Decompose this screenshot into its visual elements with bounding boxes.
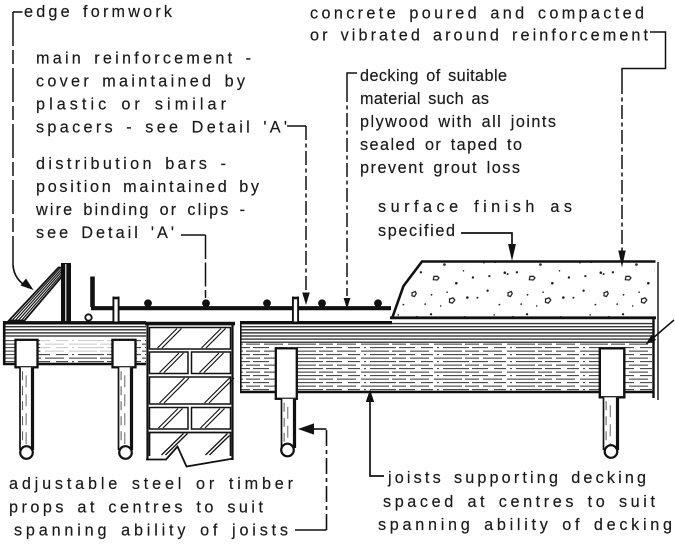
svg-text:material such as: material such as: [360, 90, 489, 108]
svg-text:cover maintained by: cover maintained by: [36, 73, 246, 91]
svg-text:plywood with all joints: plywood with all joints: [360, 113, 556, 131]
svg-text:or vibrated around reinforceme: or vibrated around reinforcement: [310, 27, 649, 45]
svg-text:spacers - see Detail 'A': spacers - see Detail 'A': [36, 119, 287, 137]
svg-text:spaced at centres to suit: spaced at centres to suit: [383, 493, 656, 511]
svg-text:main reinforcement -: main reinforcement -: [36, 50, 251, 68]
svg-text:wire binding or clips -: wire binding or clips -: [35, 201, 245, 219]
svg-text:prevent grout loss: prevent grout loss: [360, 159, 520, 177]
svg-text:joists supporting decking: joists supporting decking: [387, 469, 646, 487]
svg-text:position maintained by: position maintained by: [36, 178, 260, 196]
svg-text:surface finish as: surface finish as: [378, 198, 572, 216]
svg-text:specified: specified: [378, 222, 455, 240]
svg-text:decking of suitable: decking of suitable: [360, 67, 507, 85]
